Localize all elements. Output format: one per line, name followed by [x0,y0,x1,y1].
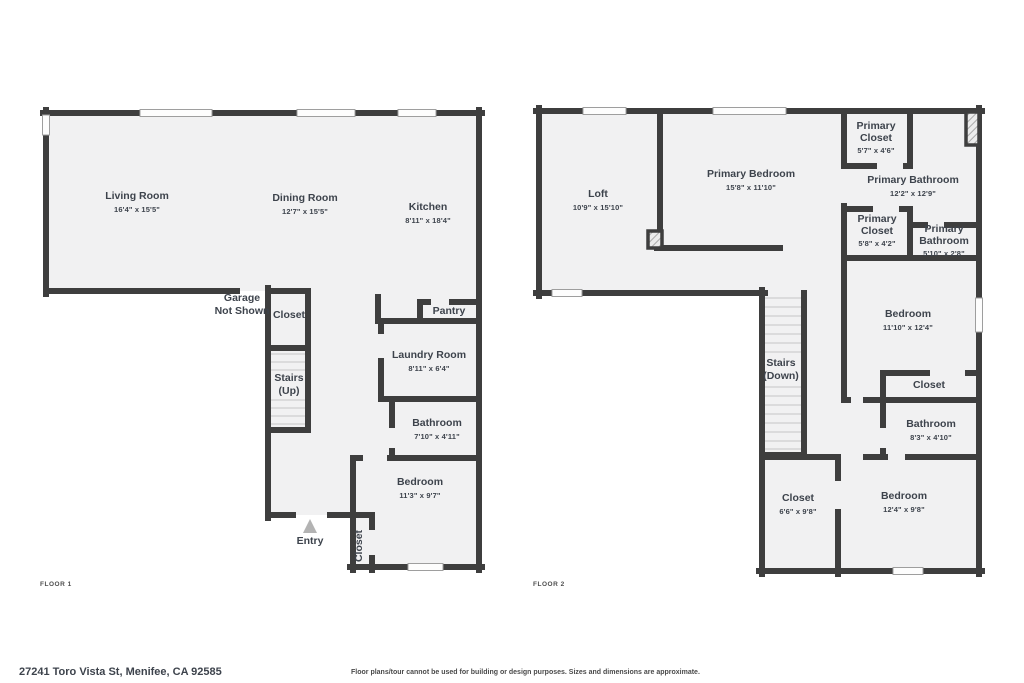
room-label-closet-mid: Closet [913,379,946,391]
stairs-up-label-line2: (Up) [279,385,300,397]
room-dims-primary-bathroom-2: 5'10" x 2'8" [923,249,965,258]
garage-note-line2: Not Shown [215,305,270,317]
room-dims-bedroom-f1: 11'3" x 9'7" [399,491,441,500]
window [398,110,436,117]
disclaimer-text: Floor plans/tour cannot be used for buil… [351,669,700,676]
window [408,564,443,571]
room-dims-closet-bottom: 6'6" x 9'8" [779,507,817,516]
room-dims-primary-bathroom-1: 12'2" x 12'9" [890,189,936,198]
room-dims-primary-closet-2: 5'8" x 4'2" [858,239,896,248]
room-label-laundry: Laundry Room [392,349,466,361]
room-label-primary-bathroom-1: Primary Bathroom [867,174,959,186]
room-dims-bedroom-bottom: 12'4" x 9'8" [883,505,925,514]
floor-plan-canvas: Living Room 16'4" x 15'5" Dining Room 12… [0,0,1024,683]
room-label-bathroom-f1: Bathroom [412,417,462,429]
room-label-primary-closet-2b: Closet [861,225,894,237]
room-dims-bathroom-f1: 7'10" x 4'11" [414,432,460,441]
room-label-closet-bottom: Closet [782,492,815,504]
room-dims-laundry: 8'11" x 6'4" [408,364,450,373]
floor2-caption: FLOOR 2 [533,581,565,588]
room-label-dining-room: Dining Room [272,192,337,204]
floor-plan-page: Living Room 16'4" x 15'5" Dining Room 12… [0,0,1024,683]
room-label-bathroom-f2: Bathroom [906,418,956,430]
room-label-primary-closet-2a: Primary [857,213,896,225]
window [140,110,212,117]
stairs-down-label-line2: (Down) [763,370,799,382]
room-label-bedroom-bottom: Bedroom [881,490,927,502]
room-label-living-room: Living Room [105,190,169,202]
entry-label: Entry [297,535,324,547]
room-label-primary-bedroom: Primary Bedroom [707,168,795,180]
window [713,108,786,115]
window [43,115,50,135]
stairs-up-label-line1: Stairs [274,372,303,384]
floor2-plan: Loft 10'9" x 15'10" Primary Bedroom 15'8… [533,108,983,589]
hatch-shaft-icon [966,112,979,145]
window [552,290,582,297]
window [583,108,626,115]
window [976,298,983,332]
room-dims-dining-room: 12'7" x 15'5" [282,207,328,216]
room-label-primary-bathroom-2a: Primary [924,223,963,235]
room-label-loft: Loft [588,188,608,200]
floor1-caption: FLOOR 1 [40,581,72,588]
room-label-pantry: Pantry [433,305,466,317]
property-address: 27241 Toro Vista St, Menifee, CA 92585 [19,666,222,678]
room-dims-loft: 10'9" x 15'10" [573,203,624,212]
hatch-shaft-icon [648,231,662,248]
room-label-primary-bathroom-2b: Bathroom [919,235,969,247]
room-label-closet-hall: Closet [273,309,306,321]
room-dims-living-room: 16'4" x 15'5" [114,205,160,214]
room-label-bedroom-closet: Closet [353,529,365,562]
stairs-down-label-line1: Stairs [766,357,795,369]
room-dims-primary-bedroom: 15'8" x 11'10" [726,183,776,192]
room-dims-bathroom-f2: 8'3" x 4'10" [910,433,952,442]
room-label-kitchen: Kitchen [409,201,448,213]
window [893,568,923,575]
floor1-plan: Living Room 16'4" x 15'5" Dining Room 12… [40,110,482,589]
room-dims-primary-closet-1: 5'7" x 4'6" [857,146,895,155]
room-label-primary-closet-1a: Primary [856,120,895,132]
room-label-bedroom-mid: Bedroom [885,308,931,320]
room-label-primary-closet-1b: Closet [860,132,893,144]
entry-arrow-icon [303,519,317,533]
room-dims-kitchen: 8'11" x 18'4" [405,216,451,225]
room-label-bedroom-f1: Bedroom [397,476,443,488]
room-dims-bedroom-mid: 11'10" x 12'4" [883,323,933,332]
garage-note-line1: Garage [224,292,260,304]
window [297,110,355,117]
